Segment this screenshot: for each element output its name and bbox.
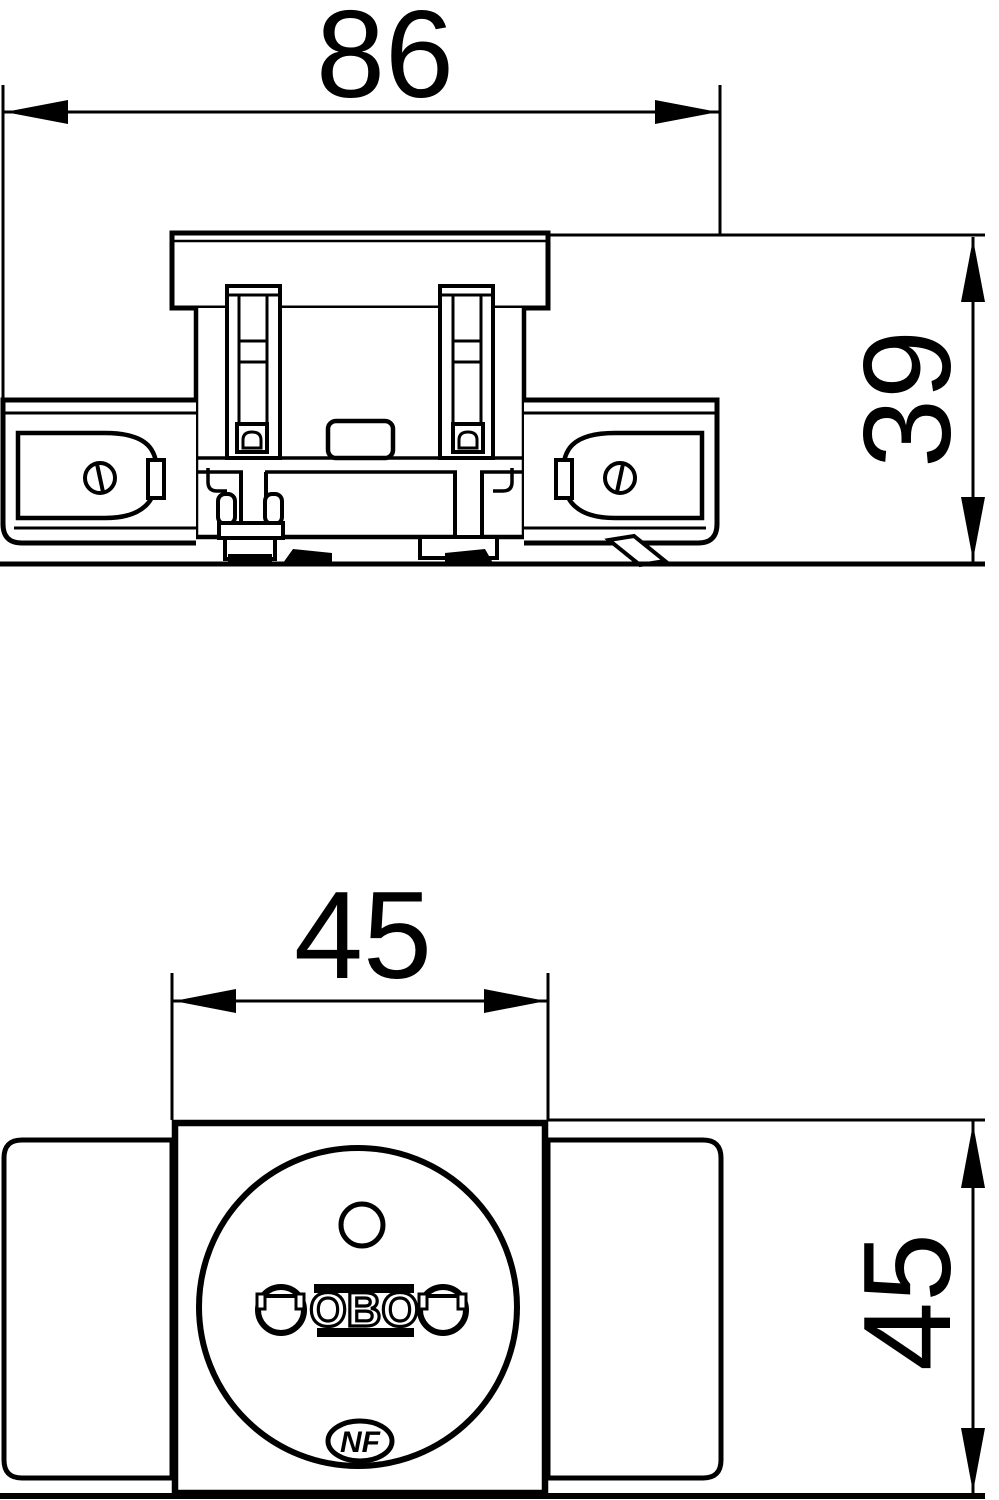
front-right-wing xyxy=(548,1140,721,1478)
dimension-arrow-down xyxy=(961,1428,985,1492)
clamp-foot xyxy=(265,494,282,524)
front-left-wing xyxy=(4,1140,172,1478)
dimension-arrow-left xyxy=(5,100,68,124)
dimension-arrow-left xyxy=(174,989,236,1013)
obo-logo: OBO xyxy=(309,1284,418,1337)
nf-certification-badge: NF xyxy=(328,1421,392,1461)
clamp-foot xyxy=(218,494,235,524)
center-latch-tab xyxy=(328,421,393,458)
dimension-arrow-down xyxy=(961,497,985,560)
dimension-height-45: 45 xyxy=(839,1120,985,1494)
right-terminal-wing xyxy=(524,400,717,543)
dimension-arrow-right xyxy=(484,989,546,1013)
obo-logo-text: OBO xyxy=(309,1284,418,1337)
dimension-arrow-right xyxy=(655,100,718,124)
left-foot-pad xyxy=(283,549,332,563)
dimension-arrow-up xyxy=(961,1124,985,1188)
dimension-text-width: 45 xyxy=(294,867,432,1005)
technical-drawing: 86 xyxy=(0,0,999,1500)
dimension-text-width: 86 xyxy=(316,0,454,124)
right-mounting-claw xyxy=(440,286,493,458)
dimension-text-height: 45 xyxy=(839,1233,977,1371)
side-view: 86 xyxy=(0,0,985,565)
dimension-width-45: 45 xyxy=(172,867,548,1120)
clamp-foot-bar xyxy=(219,523,283,538)
drawing-page: 86 xyxy=(0,0,999,1500)
dimension-height-39: 39 xyxy=(839,237,985,562)
left-pin-hole xyxy=(257,1287,304,1333)
front-view: 45 OBO NF xyxy=(0,867,985,1496)
right-pin-hole xyxy=(419,1287,466,1333)
dimension-arrow-up xyxy=(961,239,985,302)
dimension-text-height: 39 xyxy=(839,330,977,468)
earth-pin xyxy=(341,1204,383,1246)
nf-badge-text: NF xyxy=(340,1426,381,1459)
left-mounting-claw xyxy=(227,286,280,458)
left-terminal-wing xyxy=(3,400,196,543)
